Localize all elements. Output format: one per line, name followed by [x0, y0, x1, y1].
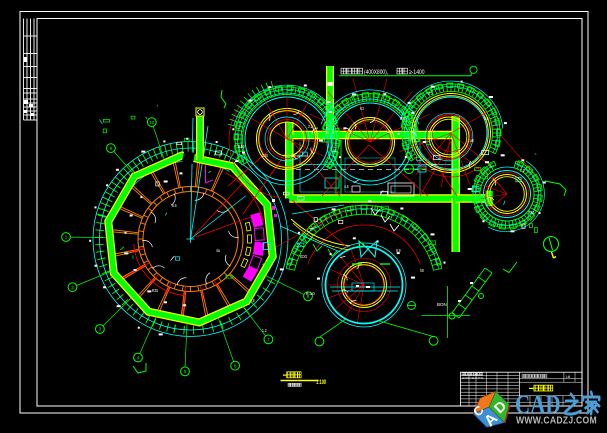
svg-text:2.2: 2.2: [308, 125, 313, 129]
svg-text:1: 1: [65, 235, 68, 240]
svg-text:h8: h8: [420, 269, 424, 273]
svg-text:1:100: 1:100: [316, 379, 326, 386]
svg-text:BON: BON: [437, 302, 447, 307]
svg-text:5.5: 5.5: [484, 117, 489, 121]
svg-text:2: 2: [71, 285, 74, 290]
svg-text:EDG: EDG: [300, 255, 307, 259]
svg-text:4: 4: [137, 355, 140, 360]
svg-text:2.8: 2.8: [250, 299, 255, 303]
svg-text:R25: R25: [152, 289, 158, 293]
svg-text:1.2: 1.2: [262, 329, 267, 333]
svg-text:4.5: 4.5: [344, 185, 349, 189]
svg-text:7.2: 7.2: [520, 169, 525, 173]
svg-text:5: 5: [184, 369, 187, 374]
svg-text:WWW.CADZJ.COM: WWW.CADZJ.COM: [516, 415, 597, 426]
svg-text:3: 3: [99, 327, 102, 332]
svg-text:10: 10: [149, 120, 155, 125]
svg-text:K2: K2: [360, 107, 364, 111]
svg-text:9: 9: [110, 146, 113, 151]
svg-text:7: 7: [267, 337, 270, 342]
svg-text:R60: R60: [400, 117, 406, 121]
svg-text:6.6: 6.6: [172, 204, 177, 208]
svg-text:(400X800),: (400X800),: [364, 69, 388, 76]
svg-text:ARCHITECTURE INSTITUTE: ARCHITECTURE INSTITUTE: [462, 376, 484, 380]
svg-text:a8: a8: [470, 139, 474, 143]
svg-text:8.50: 8.50: [238, 145, 245, 149]
svg-text:3.3: 3.3: [428, 92, 433, 96]
svg-text:≥-1400: ≥-1400: [409, 69, 425, 76]
svg-text:C20: C20: [262, 154, 268, 158]
svg-text:8.10: 8.10: [306, 291, 315, 296]
svg-text:6: 6: [234, 363, 237, 368]
svg-text:1:M: 1:M: [566, 375, 571, 379]
svg-text:b2: b2: [333, 149, 337, 153]
svg-text:R40: R40: [528, 211, 534, 215]
